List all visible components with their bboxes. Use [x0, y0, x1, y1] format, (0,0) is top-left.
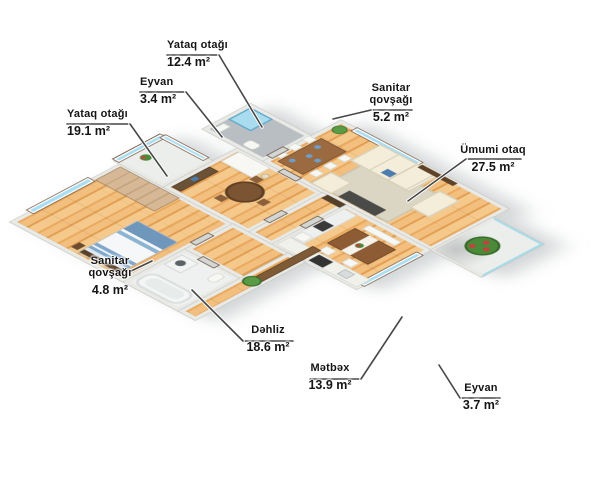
room-label-bedroom-big: Yataq otağı19.1 m²: [67, 108, 128, 138]
floorplan-3d: [10, 83, 590, 390]
room-area: 27.5 m²: [460, 161, 526, 174]
room-name: Yataq otağı: [167, 39, 228, 51]
room-label-living-room: Ümumi otaq27.5 m²: [460, 144, 526, 174]
room-name: Ümumi otaq: [460, 144, 526, 156]
room-area: 4.8 m²: [83, 284, 137, 297]
room-area: 3.4 m²: [140, 93, 176, 106]
room-name: Eyvan: [140, 76, 176, 88]
room-name: Sanitar qovşağı: [364, 82, 418, 106]
room-area: 3.7 m²: [463, 399, 499, 412]
room-label-bedroom-small: Yataq otağı12.4 m²: [167, 39, 228, 69]
room-label-balcony-north: Eyvan3.4 m²: [140, 76, 176, 106]
room-label-balcony-south: Eyvan3.7 m²: [463, 382, 499, 412]
room-name: Eyvan: [463, 382, 499, 394]
floorplan-render: Yataq otağı12.4 m²Eyvan3.4 m²Yataq otağı…: [0, 0, 600, 478]
room-label-bathroom-big: Sanitar qovşağı5.2 m²: [364, 82, 418, 124]
room-area: 5.2 m²: [364, 111, 418, 124]
room-area: 19.1 m²: [67, 125, 128, 138]
room-area: 12.4 m²: [167, 56, 228, 69]
room-name: Yataq otağı: [67, 108, 128, 120]
